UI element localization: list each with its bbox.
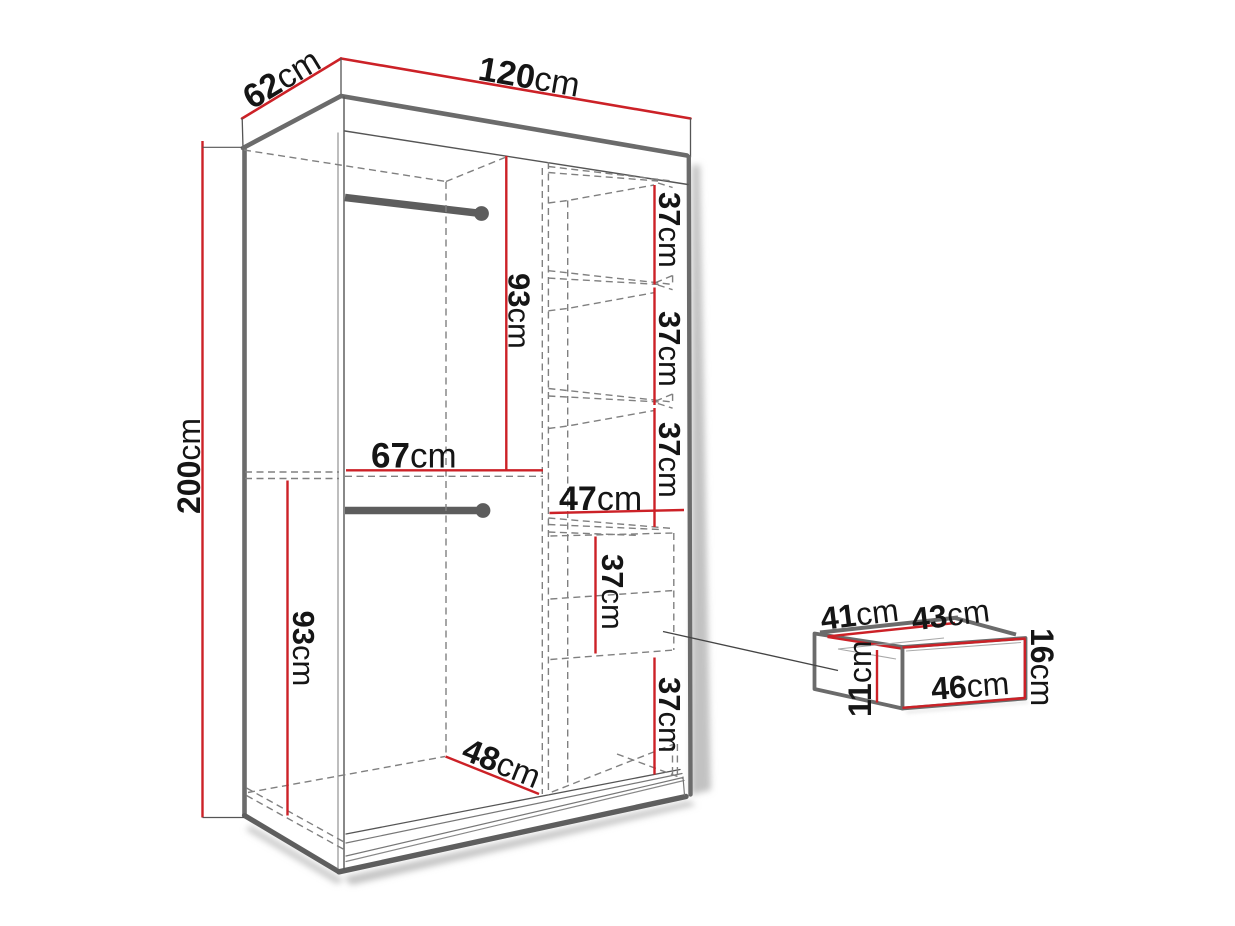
svg-text:47cm: 47cm <box>559 480 642 518</box>
svg-text:46cm: 46cm <box>930 665 1011 707</box>
svg-text:37cm: 37cm <box>595 554 630 630</box>
svg-text:43cm: 43cm <box>909 592 991 637</box>
svg-text:16cm: 16cm <box>1024 628 1060 706</box>
svg-text:37cm: 37cm <box>652 677 687 753</box>
svg-text:120cm: 120cm <box>476 50 583 105</box>
svg-text:11cm: 11cm <box>842 641 878 717</box>
svg-text:62cm: 62cm <box>236 41 327 117</box>
svg-text:93cm: 93cm <box>502 273 537 349</box>
svg-text:37cm: 37cm <box>652 311 687 387</box>
svg-text:48cm: 48cm <box>457 731 546 795</box>
svg-text:93cm: 93cm <box>286 611 321 687</box>
svg-text:200cm: 200cm <box>171 418 207 514</box>
svg-text:37cm: 37cm <box>652 192 687 268</box>
svg-text:67cm: 67cm <box>371 437 457 476</box>
svg-text:37cm: 37cm <box>652 422 687 498</box>
